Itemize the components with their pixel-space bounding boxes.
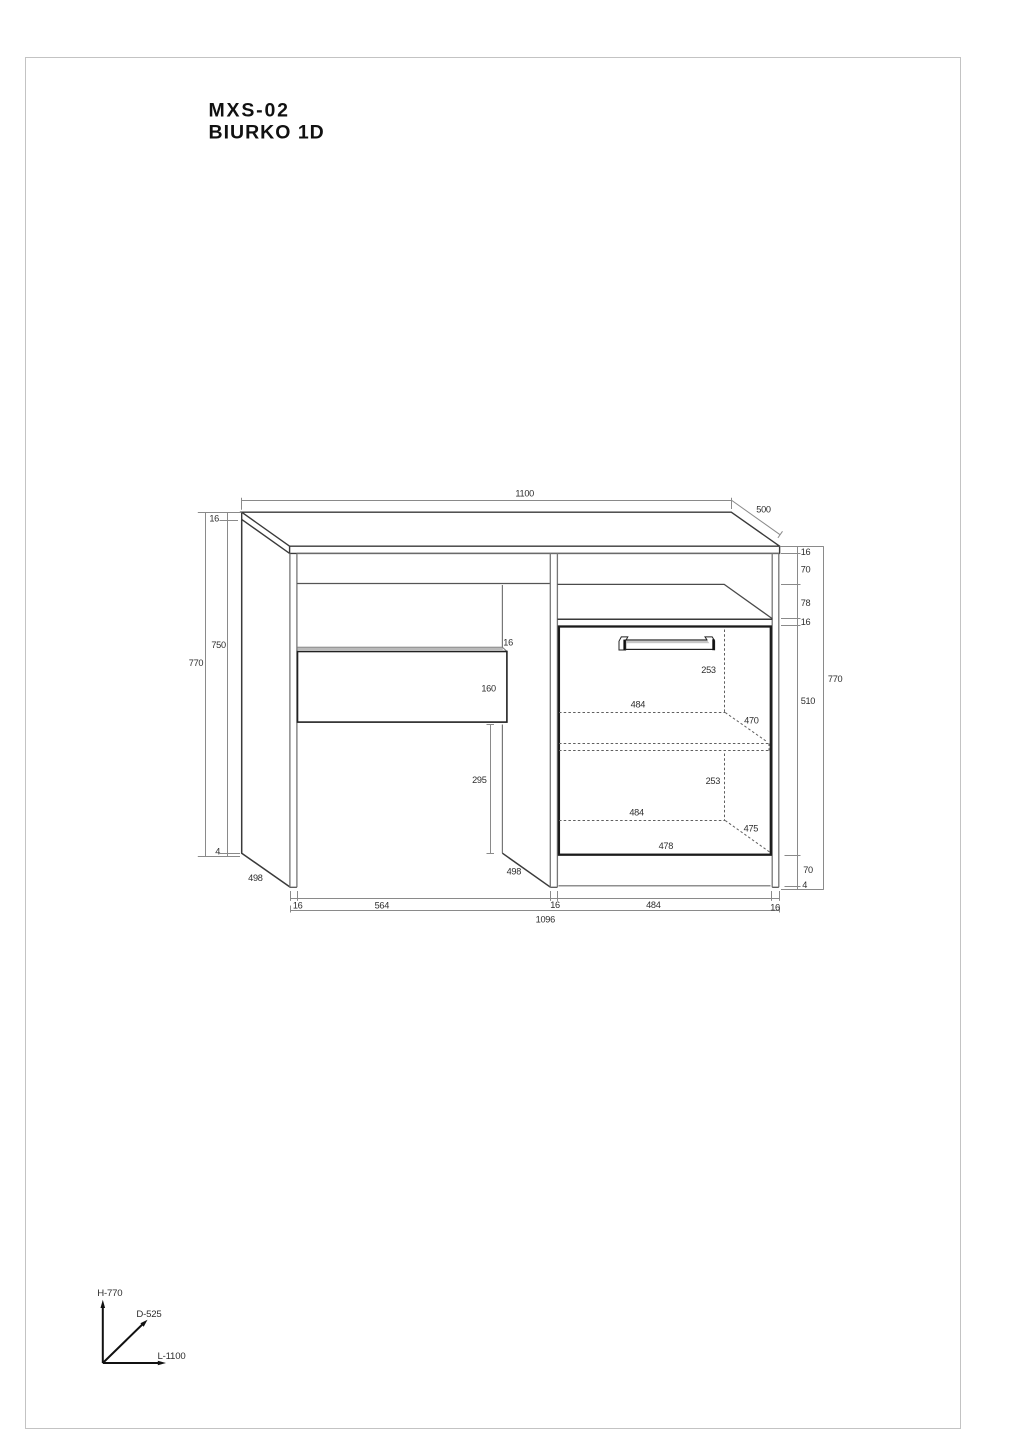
svg-text:564: 564 [375, 900, 390, 910]
svg-text:MXS-02: MXS-02 [209, 100, 290, 122]
svg-text:16: 16 [770, 902, 780, 912]
svg-text:510: 510 [801, 696, 816, 706]
svg-text:750: 750 [211, 640, 226, 650]
svg-text:484: 484 [631, 699, 646, 709]
svg-text:4: 4 [215, 846, 220, 856]
svg-text:484: 484 [646, 900, 661, 910]
svg-text:70: 70 [801, 564, 811, 574]
svg-text:295: 295 [472, 775, 487, 785]
svg-text:498: 498 [507, 867, 522, 877]
svg-text:770: 770 [189, 658, 204, 668]
svg-text:475: 475 [744, 823, 759, 833]
svg-text:1096: 1096 [536, 915, 555, 925]
svg-text:160: 160 [481, 684, 496, 694]
svg-text:16: 16 [503, 638, 513, 648]
svg-text:L-1100: L-1100 [158, 1351, 186, 1362]
svg-text:478: 478 [659, 841, 674, 851]
svg-text:16: 16 [209, 514, 219, 524]
svg-text:D-525: D-525 [136, 1309, 161, 1320]
svg-text:H-770: H-770 [97, 1288, 122, 1299]
svg-text:16: 16 [801, 617, 811, 627]
svg-text:470: 470 [744, 716, 759, 726]
svg-text:770: 770 [828, 674, 843, 684]
svg-text:253: 253 [701, 665, 716, 675]
svg-text:16: 16 [550, 900, 560, 910]
svg-text:16: 16 [293, 901, 303, 911]
svg-text:484: 484 [629, 808, 644, 818]
svg-text:70: 70 [803, 865, 813, 875]
svg-text:1100: 1100 [515, 489, 534, 499]
svg-text:BIURKO 1D: BIURKO 1D [209, 122, 325, 144]
svg-text:500: 500 [756, 505, 771, 515]
svg-text:4: 4 [802, 880, 807, 890]
svg-text:498: 498 [248, 873, 263, 883]
svg-text:16: 16 [801, 547, 811, 557]
svg-text:78: 78 [801, 598, 811, 608]
svg-text:253: 253 [706, 776, 721, 786]
